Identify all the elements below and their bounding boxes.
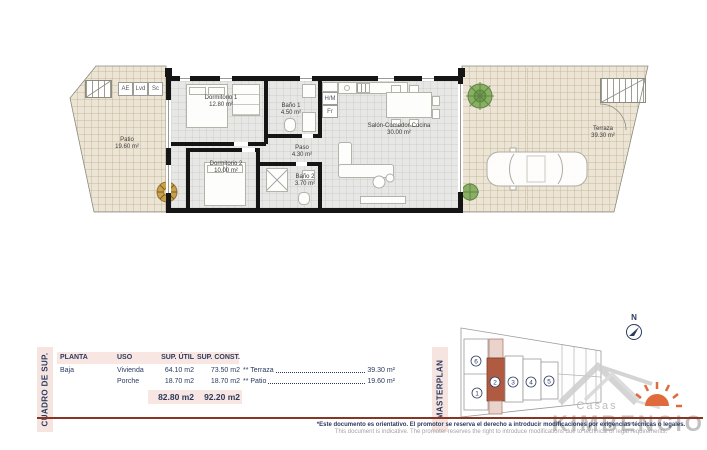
brochure-page: AE Lvd Sc H/M Fr <box>0 0 707 450</box>
room-label-salon: Salón-Comedor-Cocina 30.00 m² <box>368 123 431 137</box>
wall-segment <box>256 162 322 166</box>
room-name: Paso <box>292 145 312 152</box>
footer-rule <box>37 417 703 419</box>
col-header-uso: USO <box>117 354 132 361</box>
window-glass <box>220 78 232 79</box>
unit-number: 6 <box>474 358 478 365</box>
room-label-terraza: Terraza 39.30 m² <box>591 126 615 140</box>
room-label-dormitorio2: Dormitorio 2 10.00 m² <box>210 161 243 175</box>
door-opening <box>302 134 313 138</box>
coffee-table-icon <box>373 174 394 188</box>
extra-row-terraza: ** Terraza 39.30 m² <box>243 366 395 374</box>
footer-disclaimer: *Este documento es orientativo. El promo… <box>300 422 702 436</box>
room-name: Dormitorio 1 <box>205 95 238 102</box>
col-header-planta: PLANTA <box>60 354 88 361</box>
room-area: 12.80 m² <box>205 102 238 109</box>
total-sup-const: 92.20 m2 <box>198 392 240 402</box>
wall-segment <box>318 166 322 208</box>
cell-uso: Porche <box>117 378 139 385</box>
col-header-sup-util: SUP. ÚTIL <box>150 354 194 361</box>
extra-label: ** Terraza <box>243 367 274 374</box>
wall-segment <box>266 134 322 138</box>
room-name: Salón-Comedor-Cocina <box>368 123 431 130</box>
window-glass <box>180 78 190 79</box>
window-glass <box>422 78 434 79</box>
col-header-sup-const: SUP. CONST. <box>196 354 240 361</box>
unit-block-6-1 <box>464 339 488 410</box>
north-compass-icon <box>625 323 643 341</box>
north-label: N <box>620 313 648 322</box>
room-area: 3.70 m² <box>295 181 315 188</box>
room-label-bano2: Baño 2 3.70 m² <box>295 174 315 188</box>
room-label-dormitorio1: Dormitorio 1 12.80 m² <box>205 95 238 109</box>
cell-const: 73.50 m2 <box>196 367 240 374</box>
wall-segment <box>186 148 190 208</box>
total-sup-util: 82.80 m2 <box>148 392 194 402</box>
wall-segment <box>166 208 463 213</box>
masterplan-side-label: MASTERPLAN <box>432 347 448 432</box>
wall-segment <box>256 148 260 208</box>
wall-segment <box>166 76 463 81</box>
floor-plan: AE Lvd Sc H/M Fr <box>0 0 707 260</box>
plant-icon <box>466 82 494 110</box>
room-area: 4.30 m² <box>292 152 312 159</box>
car-icon <box>487 148 587 190</box>
room-name: Terraza <box>591 126 615 133</box>
wall-stub <box>458 68 465 77</box>
unit-number: 3 <box>511 379 515 386</box>
surface-table-side-label: CUADRO DE SUP. <box>37 347 53 432</box>
room-area: 4.50 m² <box>281 110 301 117</box>
door-opening <box>242 148 255 152</box>
dotted-leader <box>276 366 366 373</box>
dotted-leader <box>268 377 365 384</box>
disclaimer-es: *Este documento es orientativo. El promo… <box>300 422 702 429</box>
unit-2-terrace <box>489 401 502 414</box>
room-name: Dormitorio 2 <box>210 161 243 168</box>
room-label-patio: Patio 19.60 m² <box>115 137 139 151</box>
extra-value: 39.30 m² <box>367 367 395 374</box>
wall-segment <box>318 81 322 138</box>
cell-planta: Baja <box>60 367 74 374</box>
unit-2-patio <box>489 339 503 358</box>
cell-util: 64.10 m2 <box>150 367 194 374</box>
window-glass <box>378 78 394 79</box>
door-opening <box>234 142 248 146</box>
disclaimer-en: This document is indicative. The promote… <box>300 429 702 436</box>
window-glass <box>300 78 312 79</box>
room-area: 39.30 m² <box>591 133 615 140</box>
extra-label: ** Patio <box>243 378 266 385</box>
plant-icon-small <box>461 183 479 201</box>
room-name: Patio <box>115 137 139 144</box>
cell-util: 18.70 m2 <box>150 378 194 385</box>
entry-door-glass <box>168 165 169 193</box>
room-name: Baño 2 <box>295 174 315 181</box>
unit-number: 1 <box>475 390 479 397</box>
room-area: 30.00 m² <box>368 130 431 137</box>
door-opening <box>296 162 307 166</box>
room-label-bano1: Baño 1 4.50 m² <box>281 103 301 117</box>
patio-door-glass <box>168 100 169 148</box>
masterplan-title: MASTERPLAN <box>436 360 445 420</box>
room-label-paso: Paso 4.30 m² <box>292 145 312 159</box>
wall-stub <box>165 68 172 77</box>
terrace-glass <box>460 84 461 192</box>
surface-table-title: CUADRO DE SUP. <box>41 353 50 427</box>
cell-uso: Vivienda <box>117 367 144 374</box>
extra-row-patio: ** Patio 19.60 m² <box>243 377 395 385</box>
room-area: 19.60 m² <box>115 144 139 151</box>
unit-number: 2 <box>493 379 497 386</box>
room-area: 10.00 m² <box>210 168 243 175</box>
unit-number: 4 <box>529 379 533 386</box>
room-name: Baño 1 <box>281 103 301 110</box>
wall-segment <box>171 142 266 146</box>
cell-const: 18.70 m2 <box>196 378 240 385</box>
extra-value: 19.60 m² <box>367 378 395 385</box>
